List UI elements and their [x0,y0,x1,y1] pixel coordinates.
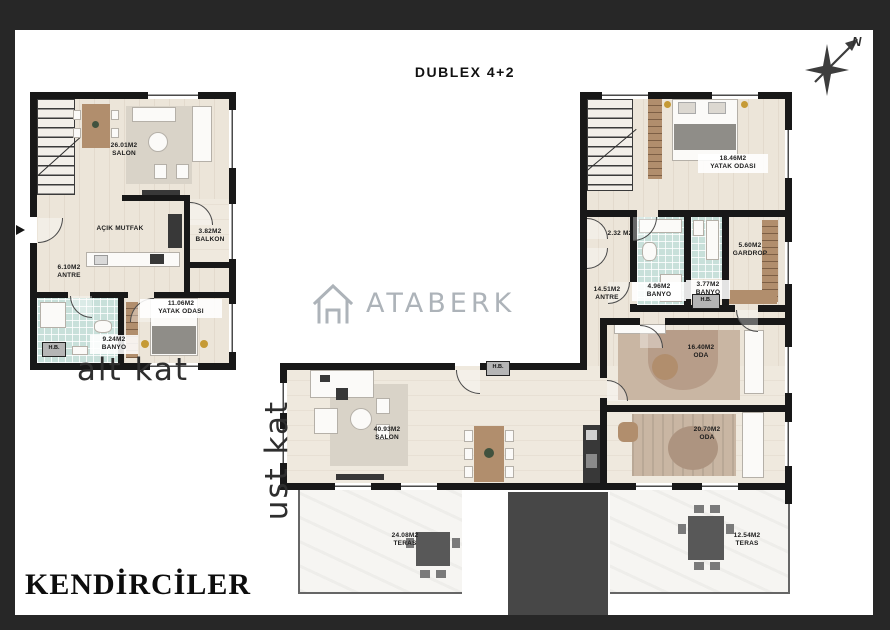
terrace-door [702,483,738,490]
sink [94,255,108,265]
chair [464,466,473,478]
room-label-gardrop: 5.60M2GARDROP [722,242,778,259]
plant [92,121,99,128]
room-label-yatak-odasi: 18.46M2YATAK ODASI [698,154,768,173]
chair [73,128,81,138]
room-label-antre: 14.51M2ANTRE [583,286,631,303]
wall [122,195,184,201]
wall [738,483,792,490]
wall [665,318,792,325]
wall [758,305,792,312]
window [785,347,792,393]
chair [111,110,119,120]
chair [505,448,514,460]
nightstand-lamp [141,340,149,348]
room-label-oda-2: 20.70M2ODA [678,426,736,443]
window [148,92,198,99]
stove [150,254,164,264]
terrace-door [401,483,437,490]
room-label-teras-1: 24.08M2TERAS [380,532,430,549]
chair [111,128,119,138]
bed-blanket [152,326,196,354]
wall [600,318,607,378]
window [229,110,236,168]
wall [30,92,236,99]
terrace-table [688,516,724,560]
terrace-door [335,483,371,490]
washbasin [693,220,704,236]
armchair [314,408,338,434]
shower [40,302,66,328]
pillow [678,102,696,114]
stove [586,454,597,468]
floorplan-canvas: DUBLEX 4+2 N [0,0,890,630]
tv-unit [336,474,384,480]
north-label: N [852,34,861,49]
wall [184,262,229,268]
wall [280,363,455,370]
brand-logo: KENDİRCİLER [25,568,251,602]
chair [464,448,473,460]
wall [437,483,600,490]
armchair [376,398,390,414]
wall [600,483,636,490]
armchair [176,164,189,179]
side-table [336,388,348,400]
room-label-balkon: 3.82M2BALKON [188,228,232,245]
wall [600,398,607,490]
room-label-salon: 26.01M2SALON [94,142,154,159]
ust-kat-caption: ust kat [259,390,295,530]
closet-shelves [729,290,777,304]
kitchen-cabinet [168,214,182,248]
terrace-chair [710,505,720,513]
sofa [132,107,176,122]
ataberk-watermark: ATABERK [310,280,515,326]
floorplan-ust-kat: 18.46M2YATAK ODASI 2.32 M2 5.60M2GARDROP… [280,92,792,630]
nightstand-lamp [200,340,208,348]
roof-block [508,492,608,630]
sofa [742,412,764,478]
room-label-oda-1: 16.40M2ODA [672,344,730,361]
terrace-chair [452,538,460,548]
room-label-banyo-2: 4.96M2BANYO [632,282,686,301]
terrace-chair [420,570,430,578]
sofa [744,330,764,394]
armchair [154,164,167,179]
entrance-door-gap [30,217,37,243]
terrace-door [636,483,672,490]
chair [505,466,514,478]
room-label-salon: 40.93M2SALON [358,426,416,443]
plan-title: DUBLEX 4+2 [335,64,595,80]
entrance-arrow-icon [16,225,25,235]
wardrobe [648,99,662,179]
wall [672,483,702,490]
toilet [642,242,657,261]
console [192,106,212,162]
bed-blanket [674,124,736,150]
shaft-label-hb: H.B. [486,361,510,376]
plant [484,448,494,458]
sink [586,430,597,440]
armchair [618,422,638,442]
window [785,242,792,284]
terrace-chair [710,562,720,570]
wall [280,363,287,383]
room-label-teras-2: 12.54M2TERAS [722,532,772,549]
house-logo-icon [310,280,356,326]
nightstand-lamp [741,101,748,108]
window [229,304,236,352]
wall [154,292,229,298]
room-label-yatak-odasi: 11.06M2YATAK ODASI [140,299,222,318]
terrace-chair [694,505,704,513]
window [785,422,792,466]
wall [607,318,640,325]
floorplan-alt-kat: 26.01M2SALON AÇIK MUTFAK 3.82M2BALKON 6.… [30,92,236,370]
window [712,92,758,99]
watermark-text: ATABERK [366,288,515,319]
staircase [587,99,633,191]
wall [371,483,401,490]
chair [73,110,81,120]
wall [580,92,587,370]
terrace-chair [694,562,704,570]
wall [587,210,632,217]
window [602,92,648,99]
toilet [94,320,112,333]
room-label-acik-mutfak: AÇIK MUTFAK [80,225,160,233]
chair [464,430,473,442]
laptop [320,375,330,382]
shaft-label-hb: H.B. [692,294,720,309]
pillow [708,102,726,114]
terrace-chair [436,570,446,578]
room-label-antre: 6.10M2ANTRE [46,264,92,281]
chair [505,430,514,442]
nightstand-lamp [664,101,671,108]
bathtub [706,220,719,260]
wall [607,405,792,412]
window [785,130,792,178]
terrace-chair [678,524,686,534]
wall [30,292,68,298]
room-label-wc: 2.32 M2 [598,230,642,238]
alt-kat-caption: alt kat [48,352,218,388]
